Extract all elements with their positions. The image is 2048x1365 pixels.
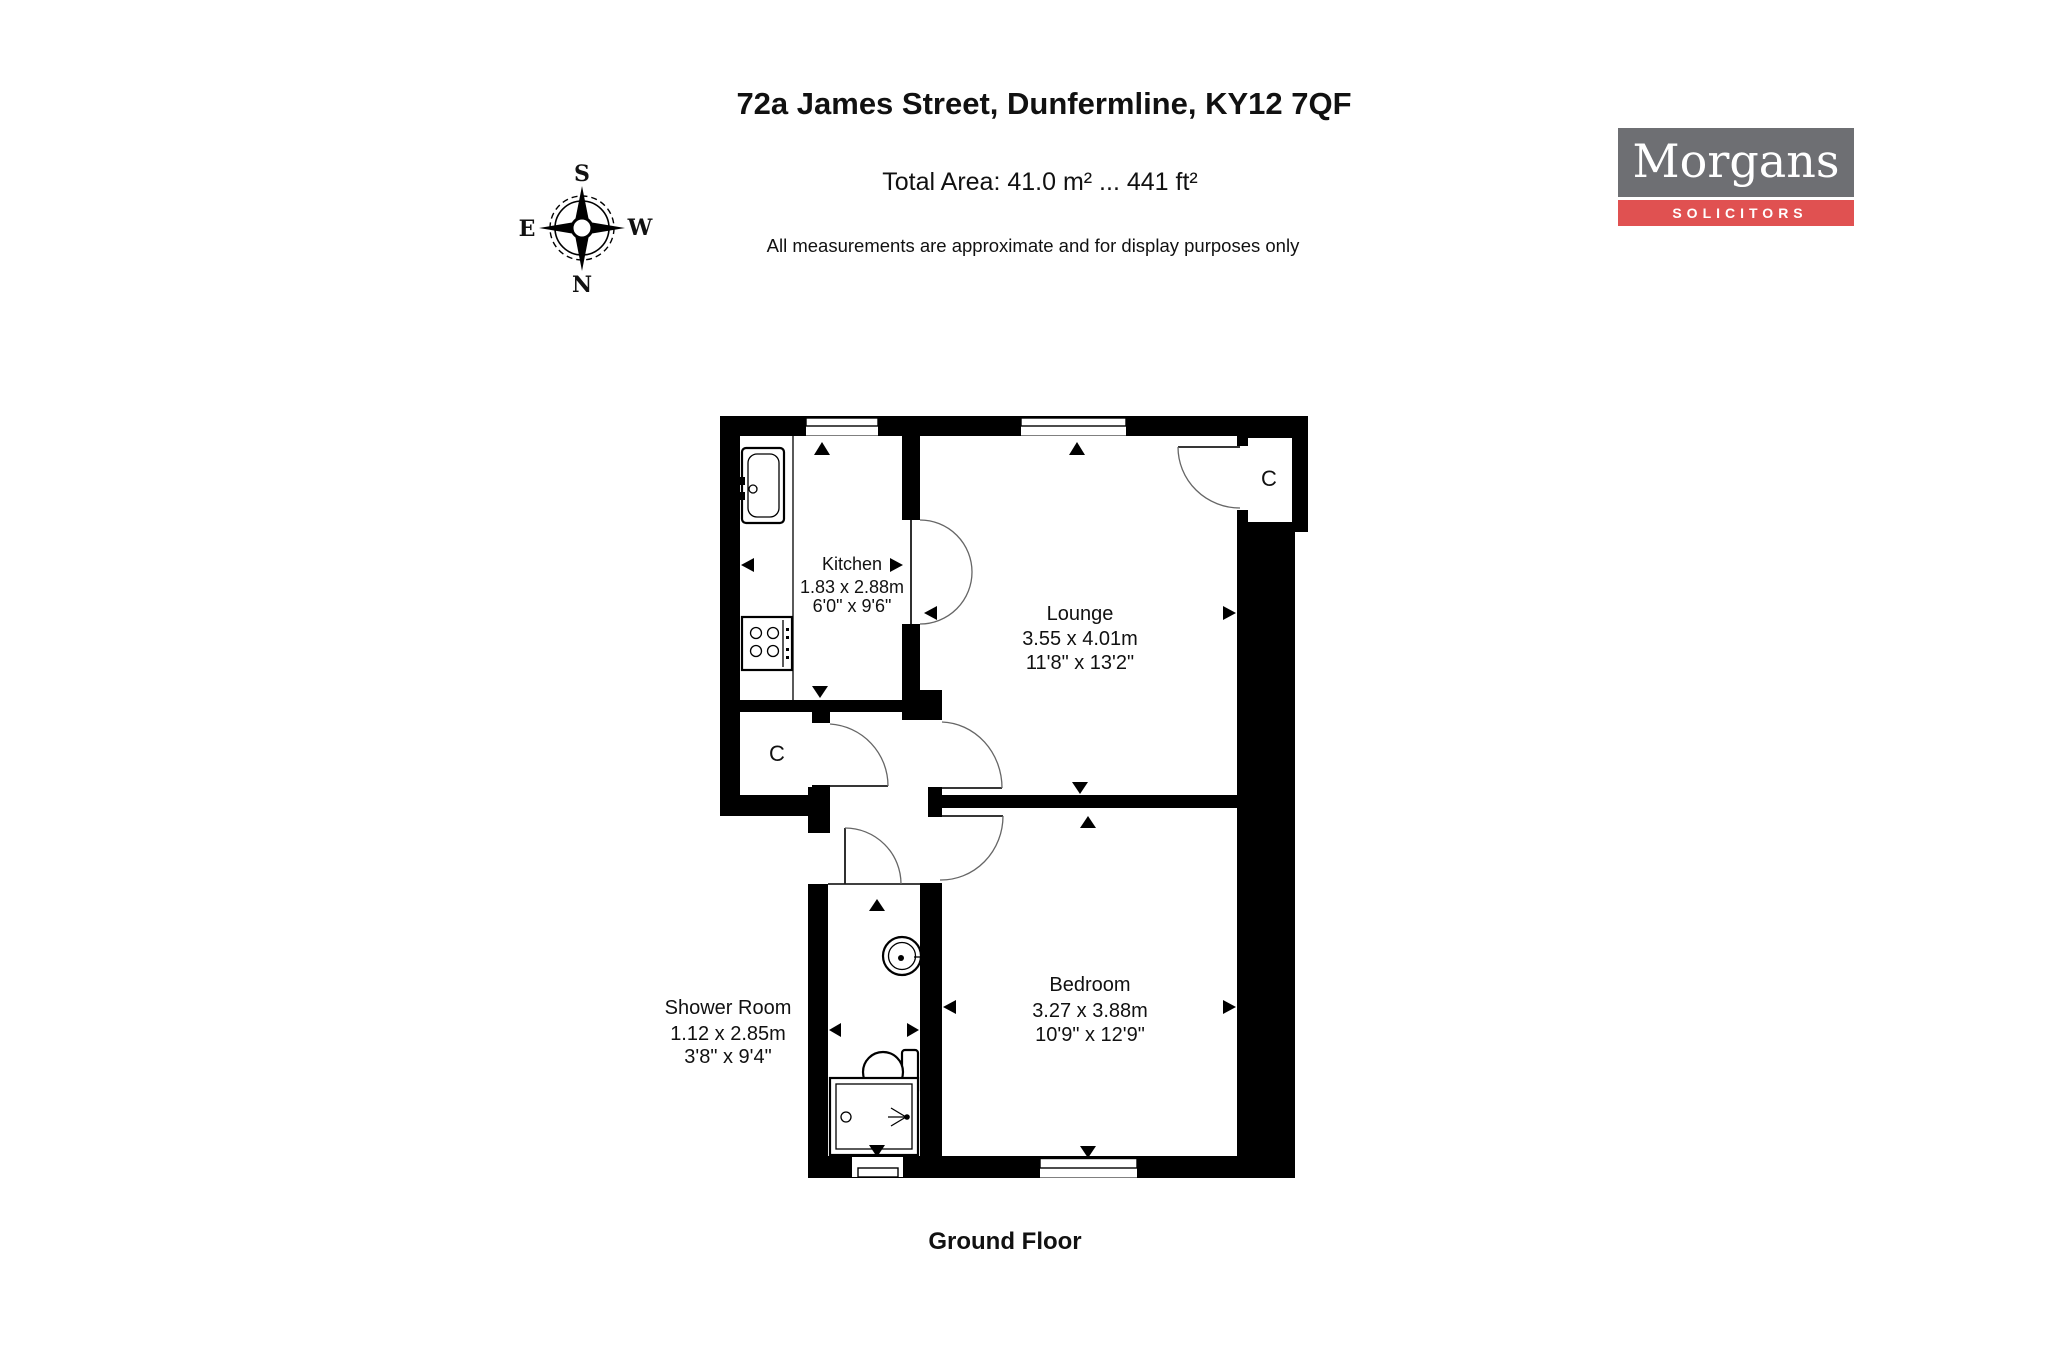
bedroom-label: Bedroom 3.27 x 3.88m 10'9" x 12'9" [1032,974,1148,1046]
compass-bottom-label: N [572,272,592,298]
morgans-logo: Morgans SOLICITORS [1618,128,1854,226]
shower-window-sill [858,1168,898,1177]
lounge-imperial: 11'8" x 13'2" [1026,652,1134,674]
kitchen-imperial: 6'0" x 9'6" [813,596,892,616]
kitchen-sink [740,448,784,523]
lounge-metric: 3.55 x 4.01m [1022,628,1138,650]
sink-tap [740,477,745,485]
kitchen-arrow-up [814,442,830,455]
shower-door-arc [845,828,901,884]
kitchen-door-arc-upper [920,520,972,572]
lounge-arrow-up [1069,442,1085,455]
closet-ll-door-arc [830,724,888,786]
disclaimer-text: All measurements are approximate and for… [767,235,1300,256]
wall-hall-corner-chunk [902,690,942,720]
bedroom-metric: 3.27 x 3.88m [1032,1000,1148,1022]
plan-walls [720,416,1308,1178]
floorplan-canvas: 72a James Street, Dunfermline, KY12 7QF … [0,0,2048,1365]
compass-rose: S N E W [519,161,653,298]
lounge-label: Lounge 3.55 x 4.01m 11'8" x 13'2" [1022,603,1138,674]
kitchen-name: Kitchen [822,554,882,574]
shower-room-imperial: 3'8" x 9'4" [684,1046,771,1068]
bedroom-door-arc [940,816,1003,880]
lounge-arrow-down [1072,782,1088,794]
bedroom-name: Bedroom [1049,974,1130,996]
total-area-text: Total Area: 41.0 m² ... 441 ft² [882,168,1197,196]
shower-arrow-left [829,1023,841,1037]
closet-lower-left-label: C [769,741,785,766]
exterior-right-strip [1295,532,1308,1178]
logo-name-text: Morgans [1633,134,1840,188]
floor-label: Ground Floor [928,1228,1081,1255]
wall-shower-bedroom [920,883,942,1178]
kitchen-arrow-left [741,558,754,572]
bedroom-arrow-up [1080,816,1096,828]
lounge-arrow-left [924,606,937,620]
floorplan-page: 72a James Street, Dunfermline, KY12 7QF … [0,0,2048,1365]
wall-lounge-bedroom [928,795,1238,808]
kitchen-hob [742,617,792,670]
room-labels: Kitchen 1.83 x 2.88m 6'0" x 9'6" Lounge … [665,466,1277,1068]
wash-basin [883,937,922,975]
kitchen-arrow-down [812,686,828,698]
shower-arrow-up [869,899,885,911]
shower-room-label: Shower Room 1.12 x 2.85m 3'8" x 9'4" [665,997,792,1068]
kitchen-arrow-right [890,558,903,572]
shower-tray [830,1078,918,1155]
kitchen-metric: 1.83 x 2.88m [800,577,904,597]
compass-right-label: W [627,215,653,241]
kitchen-label: Kitchen 1.83 x 2.88m 6'0" x 9'6" [800,554,904,616]
closet-tr-door-arc [1178,447,1240,508]
wall-kitchen-lounge-upper [902,436,920,520]
logo-tagline-text: SOLICITORS [1672,205,1807,221]
wall-left [720,416,740,816]
sink-tap-2 [740,492,745,500]
compass-hub [572,218,592,238]
kitchen-door-arc-lower [920,572,972,624]
closet-top-right-doorway [1237,446,1248,510]
bedroom-window-glazing [1040,1159,1137,1169]
shower-room-name: Shower Room [665,997,792,1019]
wall-shower-left [808,884,828,1178]
shower-room-metric: 1.12 x 2.85m [670,1023,786,1045]
lounge-window-glazing [1021,418,1126,426]
shower-arrow-right [907,1023,919,1037]
kitchen-window-glazing [806,418,878,426]
wall-door-jamb [928,787,942,817]
compass-left-label: E [519,216,536,242]
bedroom-arrow-left [943,1000,956,1014]
lounge-name: Lounge [1047,603,1114,625]
closet-top-right-label: C [1261,466,1277,491]
lounge-arrow-right [1223,606,1236,620]
lounge-door-arc [942,722,1002,788]
closet-lower-left-doorway [812,723,830,785]
bedroom-arrow-right [1223,1000,1236,1014]
page-title: 72a James Street, Dunfermline, KY12 7QF [736,86,1351,121]
compass-top-label: S [574,161,590,187]
bedroom-imperial: 10'9" x 12'9" [1035,1024,1145,1046]
